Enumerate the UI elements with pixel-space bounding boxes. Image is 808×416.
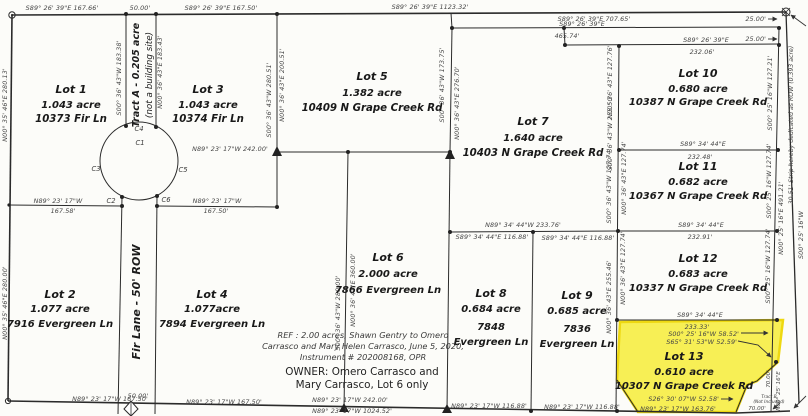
lot9-addr2: Evergreen Ln	[540, 339, 615, 350]
strip-row-label: 30.51' Strip hereby dedicated as ROW (0.…	[787, 46, 795, 205]
dim-culdesac-west-bearing: N89° 23' 17"W	[34, 197, 83, 205]
lot13-area: 0.610 acre	[654, 367, 714, 378]
dim-619-d: N00° 36' 43"E 127.74'	[620, 141, 628, 215]
lot9-label: Lot 9 0.685 acre 7836 Evergreen Ln	[540, 289, 615, 350]
lot11-area: 0.682 acre	[668, 177, 728, 188]
lot5-label: Lot 5 1.382 acre 10409 N Grape Creek Rd	[302, 70, 444, 114]
lot7-area: 1.640 acre	[503, 133, 563, 144]
dim-lot5-west: N00° 36' 43"E 200.51'	[278, 48, 286, 122]
dim-bot-total: N89° 23' 17"W 1024.52'	[312, 407, 392, 415]
lot9-area: 0.685 acre	[547, 306, 607, 317]
dim-top-lot1: S89° 26' 39"E 167.66'	[26, 4, 99, 12]
dim-619-e: N00° 36' 43"E 127.74'	[619, 231, 627, 305]
lot8-name: Lot 8	[475, 287, 507, 300]
lot10-name: Lot 10	[679, 67, 718, 80]
dim-lot11-south-bearing: S89° 34' 44"E	[678, 221, 725, 229]
lot8-area: 0.684 acre	[461, 304, 521, 315]
dim-lot10-top-length: 232.06'	[690, 48, 715, 56]
lot6-name: Lot 6	[372, 251, 404, 264]
dim-west-lot1: N00° 35' 46"E 280.13'	[1, 68, 9, 142]
curve-label-c5: C5	[178, 166, 187, 174]
dim-top-50: 50.00'	[130, 4, 151, 12]
lot9-addr1: 7836	[563, 324, 591, 335]
dim-tractb-70: 70.00'	[748, 406, 766, 412]
dim-lot3-east: S00° 36' 43"W 280.51'	[265, 62, 273, 137]
dim-lot12-south-bearing: S89° 34' 44"E	[677, 311, 724, 319]
lot10-address: 10387 N Grape Creek Rd	[629, 97, 768, 108]
lot3-area: 1.043 acre	[178, 100, 238, 111]
tract-a-note: (not a building site)	[145, 32, 155, 118]
lot10-area: 0.680 acre	[668, 84, 728, 95]
lot13-address: 10307 N Grape Creek Rd	[615, 381, 754, 392]
lot9-name: Lot 9	[561, 289, 593, 302]
lot4-label: Lot 4 1.077acre 7894 Evergreen Ln	[159, 288, 265, 330]
dim-tract-a-west: S00° 36' 43"W 183.38'	[115, 40, 123, 115]
lot4-address: 7894 Evergreen Ln	[159, 319, 265, 330]
lot1-name: Lot 1	[55, 83, 86, 96]
lot12-area: 0.683 acre	[668, 269, 728, 280]
lot5-name: Lot 5	[356, 70, 388, 83]
lot13-name: Lot 13	[665, 350, 704, 363]
curve-label-c1: C1	[135, 139, 144, 147]
lot11-address: 10367 N Grape Creek Rd	[629, 191, 768, 202]
dim-culdesac-east-length: 167.50'	[204, 207, 229, 215]
dim-lot7-west: N00° 36' 43"E 276.70'	[453, 66, 461, 140]
dim-bot-lot8: N89° 23' 17"W 116.88'	[451, 402, 527, 410]
dim-lot9-north: S89° 34' 44"E 116.88'	[542, 234, 615, 242]
dim-east-491: N00° 25' 16"E 491.21'	[777, 181, 785, 255]
lot10-label: Lot 10 0.680 acre 10387 N Grape Creek Rd	[629, 67, 768, 108]
dim-top-total: S89° 26' 39"E 1123.32'	[392, 3, 469, 11]
dim-lot13-south-2: N89° 23' 17"W 163.76'	[640, 405, 716, 413]
lot1-address: 10373 Fir Ln	[35, 114, 107, 125]
reference-note: REF : 2.00 acres, Shawn Gentry to Omero …	[262, 330, 464, 362]
dim-lot7-south: N89° 34' 44"W 233.76'	[485, 221, 561, 229]
lot6-address: 7866 Evergreen Ln	[335, 285, 441, 296]
curve-label-c2: C2	[106, 197, 115, 205]
lot3-address: 10374 Fir Ln	[172, 114, 244, 125]
lot7-label: Lot 7 1.640 acre 10403 N Grape Creek Rd	[463, 115, 605, 159]
dim-tract-a-east: N00° 36' 43"E 183.43'	[156, 35, 164, 109]
lot8-addr1: 7848	[477, 322, 505, 333]
dim-lot13-east-2: S65° 31' 53"W 52.59'	[666, 338, 737, 346]
dim-east-70: 70.00'	[766, 370, 772, 388]
plat-map: S89° 26' 39"E 167.66' 50.00' S89° 26' 39…	[0, 0, 808, 416]
dim-lot11-south-length: 232.91'	[688, 233, 713, 241]
dim-lot13-south-1: S26° 30' 07"W 52.58'	[648, 395, 719, 403]
lot12-label: Lot 12 0.683 acre 10337 N Grape Creek Rd	[629, 252, 768, 294]
plat-map-page: S89° 26' 39"E 167.66' 50.00' S89° 26' 39…	[0, 0, 808, 416]
ref-line-1: REF : 2.00 acres, Shawn Gentry to Omero	[278, 330, 449, 340]
ref-line-3: Instrument # 202008168, OPR	[300, 352, 426, 362]
lot3-name: Lot 3	[192, 83, 224, 96]
lot2-label: Lot 2 1.077 acre 7916 Evergreen Ln	[7, 288, 113, 330]
ref-line-2: Carrasco and Mary Helen Carrasco, June 5…	[262, 341, 464, 351]
dim-bot-50: 50.00'	[128, 392, 149, 400]
lot11-label: Lot 11 0.682 acre 10367 N Grape Creek Rd	[629, 160, 768, 202]
dim-east-outer: S00° 25' 16"W	[797, 210, 805, 259]
lot7-name: Lot 7	[517, 115, 549, 128]
dim-east-lot10: S00° 25' 16"W 127.21'	[766, 55, 774, 130]
dim-lot10-south-bearing: S89° 34' 44"E	[680, 140, 727, 148]
lot5-area: 1.382 acre	[342, 88, 402, 99]
owner-note: OWNER: Omero Carrasco and Mary Carrasco,…	[285, 366, 439, 391]
dim-lot8-north: S89° 34' 44"E 116.88'	[456, 233, 529, 241]
lot1-label: Lot 1 1.043 acre 10373 Fir Ln	[35, 83, 107, 125]
lot12-address: 10337 N Grape Creek Rd	[629, 283, 768, 294]
dim-lot10-top-bearing: S89° 26' 39"E	[683, 36, 730, 44]
dim-lot5-south: N89° 23' 17"W 242.00'	[192, 145, 268, 153]
fir-lane-label: Fir Lane - 50' ROW	[130, 244, 143, 360]
dim-bot-lot6: N89° 23' 17"W 242.00'	[312, 396, 388, 404]
lot8-addr2: Evergreen Ln	[454, 337, 529, 348]
lot5-address: 10409 N Grape Creek Rd	[302, 103, 444, 114]
lot8-label: Lot 8 0.684 acre 7848 Evergreen Ln	[454, 287, 529, 348]
dim-bot-lot4: N89° 23' 17"W 167.50'	[186, 398, 262, 406]
lot3-label: Lot 3 1.043 acre 10374 Fir Ln	[172, 83, 244, 125]
dim-25-offset-2: 25.00'	[745, 35, 766, 43]
lot4-area: 1.077acre	[184, 304, 240, 315]
tract-b-note: (Not Included)	[753, 399, 785, 405]
lot2-address: 7916 Evergreen Ln	[7, 319, 113, 330]
dim-619-f: N00° 36' 43"E 255.46'	[605, 260, 613, 334]
lot11-name: Lot 11	[679, 160, 718, 173]
dim-east-lot11: S00° 25' 16"W 127.74'	[765, 143, 773, 218]
dim-culdesac-west-length: 167.58'	[51, 207, 76, 215]
dim-465-length: 465.74'	[555, 32, 580, 40]
tract-a-name: Tract A - 0.205 acre	[131, 22, 142, 127]
dim-465-bearing: S89° 26' 39"E	[559, 20, 606, 28]
curve-label-c3: C3	[91, 165, 100, 173]
curve-label-c6: C6	[161, 196, 171, 204]
dim-bot-lot9: N89° 23' 17"W 116.88'	[544, 403, 620, 411]
owner-line-2: Mary Carrasco, Lot 6 only	[296, 379, 429, 391]
lot2-name: Lot 2	[44, 288, 76, 301]
lot12-name: Lot 12	[679, 252, 718, 265]
dim-619-c: S00° 36' 43"W 127.74'	[605, 148, 613, 223]
lot1-area: 1.043 acre	[41, 100, 101, 111]
lot2-area: 1.077 acre	[30, 304, 90, 315]
dim-top-lot3: S89° 26' 39"E 167.50'	[185, 4, 258, 12]
lot7-address: 10403 N Grape Creek Rd	[463, 148, 605, 159]
lot4-name: Lot 4	[196, 288, 227, 301]
dim-25-offset-1: 25.00'	[745, 15, 766, 23]
cul-de-sac-circle	[100, 122, 178, 200]
dim-lot13-east-1: S00° 25' 16"W 58.52'	[668, 330, 739, 338]
lot6-area: 2.000 acre	[358, 269, 418, 280]
dim-culdesac-east-bearing: N89° 23' 17"W	[193, 197, 242, 205]
owner-line-1: OWNER: Omero Carrasco and	[285, 366, 439, 378]
